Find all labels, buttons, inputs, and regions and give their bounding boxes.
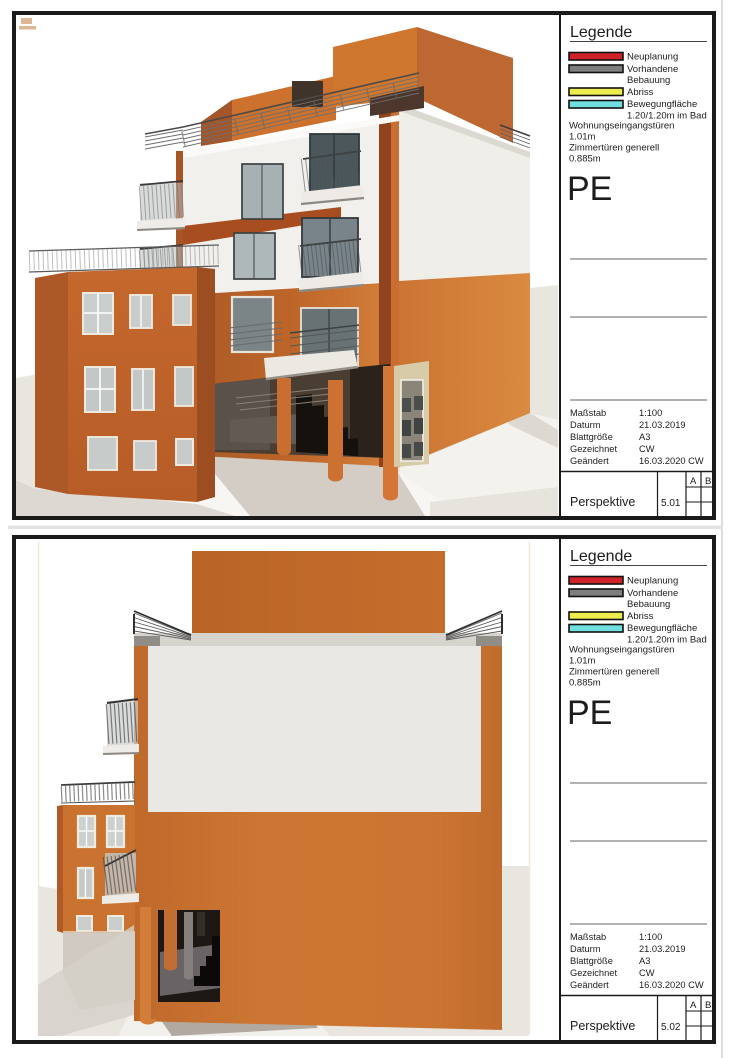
svg-text:5.02: 5.02 [661,1022,681,1033]
svg-text:5.01: 5.01 [661,498,681,509]
